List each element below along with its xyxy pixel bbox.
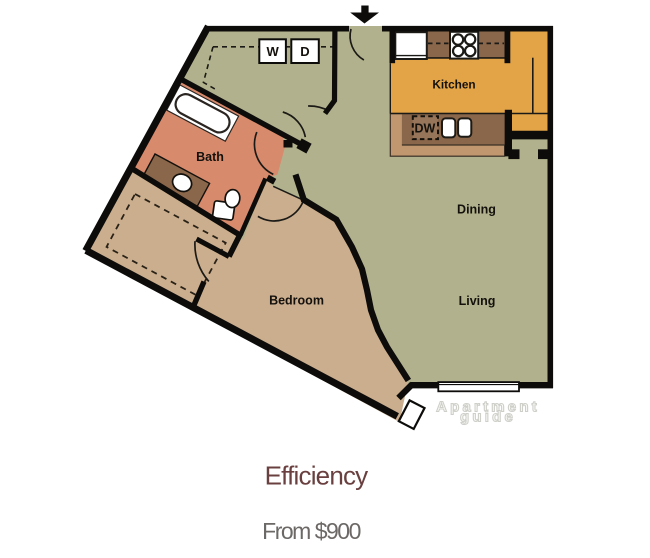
svg-text:Living: Living [459, 294, 496, 308]
svg-text:W: W [266, 44, 279, 59]
svg-text:Efficiency: Efficiency [265, 461, 369, 491]
svg-text:D: D [300, 44, 309, 59]
svg-text:Dining: Dining [457, 202, 496, 216]
svg-text:DW: DW [414, 121, 435, 135]
svg-text:Kitchen: Kitchen [432, 78, 475, 92]
svg-text:Bath: Bath [196, 150, 224, 164]
svg-text:guide: guide [460, 409, 516, 426]
svg-text:From $900: From $900 [262, 518, 360, 544]
svg-text:Bedroom: Bedroom [269, 294, 324, 308]
